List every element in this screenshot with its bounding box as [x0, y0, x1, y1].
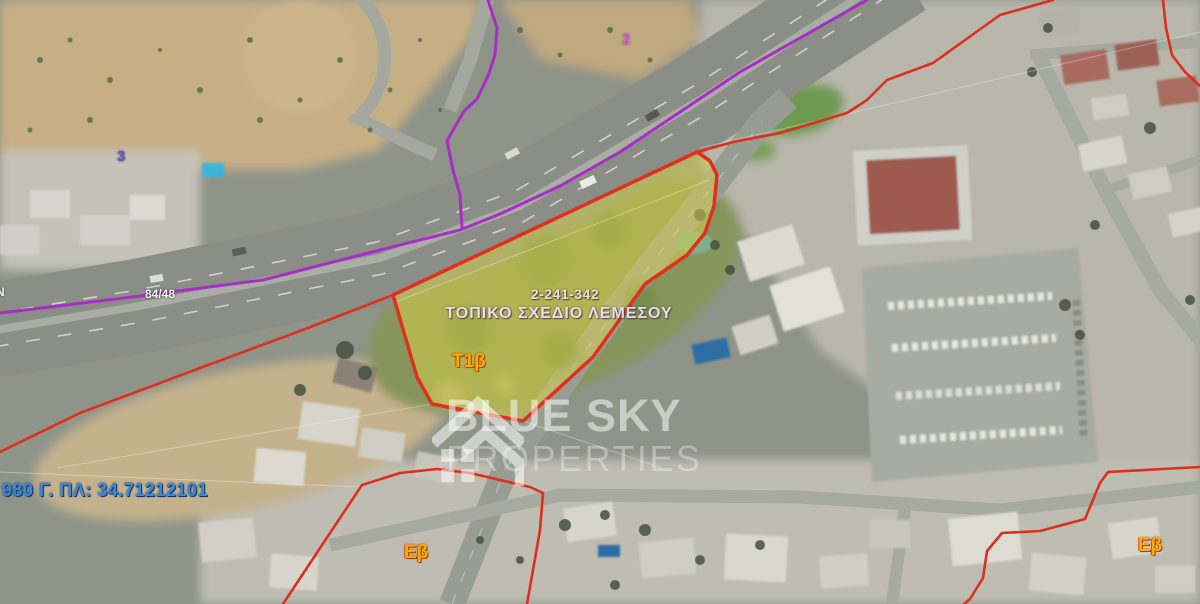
zone-label-eb-left: Εβ — [404, 543, 428, 562]
swimming-pool — [598, 545, 620, 557]
edge-partial-label: N — [0, 286, 5, 298]
swimming-pool — [202, 163, 224, 177]
coordinates-label: 980 Γ. ΠΛ: 34.71212101 — [2, 481, 208, 499]
road-ref-label: 84/48 — [145, 288, 175, 300]
red-roof-building — [866, 156, 960, 235]
map-canvas[interactable]: 2 3 84/48 N 2-241-342 ΤΟΠΙΚΟ ΣΧΕΔΙΟ ΛΕΜΕ… — [0, 0, 1200, 604]
satellite-layer — [0, 0, 1200, 604]
zone-label-t1b: Τ1β — [452, 352, 486, 371]
block-number-top: 2 — [622, 32, 630, 47]
swimming-pool — [691, 337, 730, 364]
block-number-left: 3 — [117, 149, 125, 164]
town-plan-title: ΤΟΠΙΚΟ ΣΧΕΔΙΟ ΛΕΜΕΣΟΥ — [445, 306, 672, 322]
zone-label-eb-right: Εβ — [1138, 536, 1162, 555]
parcel-number-label: 2-241-342 — [531, 287, 599, 301]
parking-lot — [862, 248, 1098, 482]
